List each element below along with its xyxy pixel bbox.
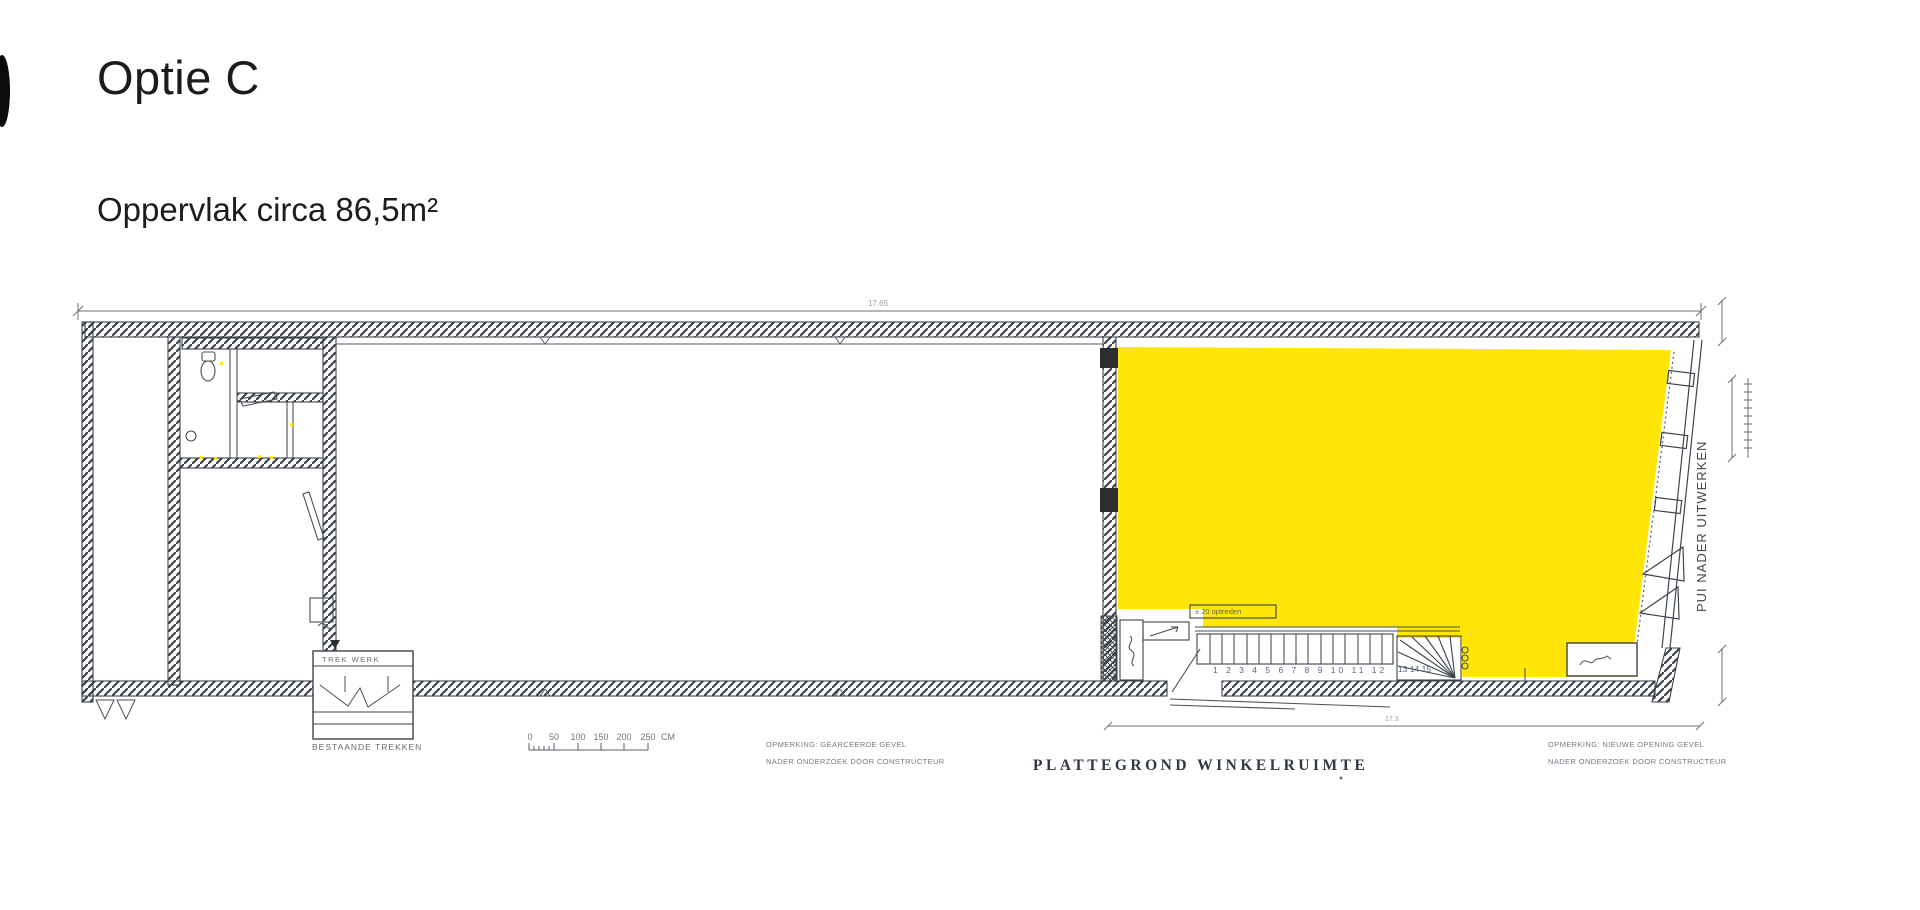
ruler-ticks xyxy=(1744,378,1752,458)
entry-door xyxy=(1170,649,1390,709)
note-left-line1: OPMERKING: GEARCEERDE GEVEL xyxy=(766,740,906,749)
floor-plan: 17.65 xyxy=(0,0,1920,910)
scale-unit: CM xyxy=(661,732,675,742)
scale-tick: 250 xyxy=(640,732,655,742)
dimension-bottom-value: 17.3 xyxy=(1385,716,1399,723)
note-left: OPMERKING: GEARCEERDE GEVEL NADER ONDERZ… xyxy=(766,740,945,766)
signature-box xyxy=(1567,643,1637,676)
scale-tick: 0 xyxy=(527,732,532,742)
foundation-marks xyxy=(96,700,135,719)
note-right-line1: OPMERKING: NIEUWE OPENING GEVEL xyxy=(1548,740,1704,749)
stair-numbers: 1 2 3 4 5 6 7 8 9 10 11 12 xyxy=(1213,665,1387,675)
scale-tick: 100 xyxy=(570,732,585,742)
scale-tick: 200 xyxy=(616,732,631,742)
scale-tick: 150 xyxy=(593,732,608,742)
dimension-line-bottom xyxy=(1104,722,1704,730)
note-right-line2: NADER ONDERZOEK DOOR CONSTRUCTEUR xyxy=(1548,757,1727,766)
scale-bar: 0 50 100 150 200 250 CM xyxy=(527,732,675,750)
plan-caption: PLATTEGROND WINKELRUIMTE xyxy=(1033,757,1368,774)
dimension-line-top xyxy=(73,303,1706,320)
trek-box: TREK WERK xyxy=(313,651,413,739)
pui-label: PUI NADER UITWERKEN xyxy=(1694,441,1709,612)
dimension-lines-right xyxy=(1718,297,1752,706)
scale-tick: 50 xyxy=(549,732,559,742)
inner-wall-lines xyxy=(336,337,1103,696)
note-left-line2: NADER ONDERZOEK DOOR CONSTRUCTEUR xyxy=(766,757,945,766)
dimension-top-value: 17.65 xyxy=(868,299,889,308)
stair-note: ± 20 optreden xyxy=(1195,607,1241,616)
scan-artifact xyxy=(0,55,10,127)
stair-numbers-winder: 13 14 15 xyxy=(1398,664,1431,674)
stair-treads xyxy=(1210,634,1382,664)
bestaande-label: BESTAANDE TREKKEN xyxy=(312,742,422,752)
trek-box-label: TREK WERK xyxy=(322,655,380,664)
stair-direction-arrow xyxy=(1150,627,1178,636)
document-page: Optie C Oppervlak circa 86,5m² 17.65 xyxy=(0,0,1920,910)
caption-dot xyxy=(1340,777,1343,780)
note-right: OPMERKING: NIEUWE OPENING GEVEL NADER ON… xyxy=(1548,740,1727,766)
